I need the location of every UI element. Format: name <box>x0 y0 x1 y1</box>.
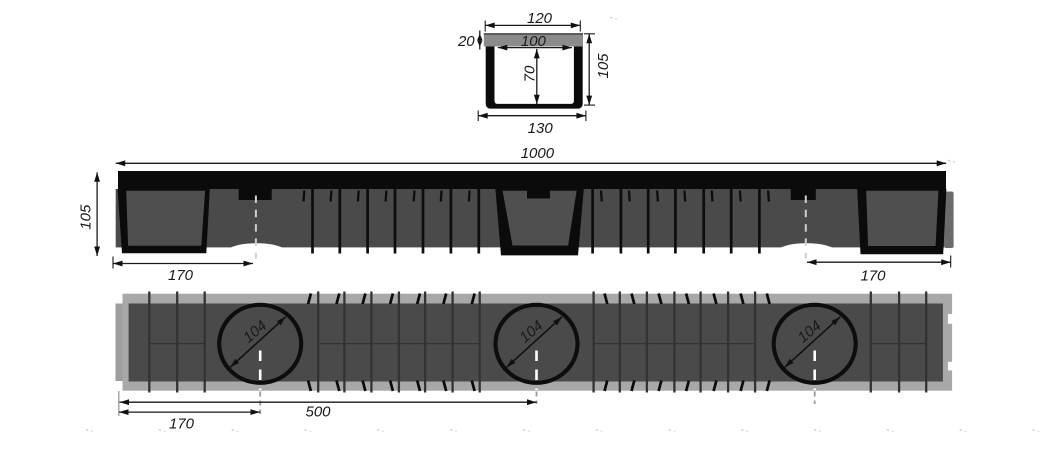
svg-text:20: 20 <box>457 33 475 50</box>
svg-text:130: 130 <box>528 120 554 137</box>
svg-text:100: 100 <box>521 33 547 50</box>
svg-text:170: 170 <box>168 267 194 284</box>
svg-text:120: 120 <box>527 10 553 27</box>
svg-text:70: 70 <box>522 65 539 82</box>
svg-text:105: 105 <box>595 53 612 79</box>
svg-text:170: 170 <box>169 416 195 433</box>
svg-text:1000: 1000 <box>521 145 555 162</box>
svg-text:500: 500 <box>305 403 331 420</box>
svg-text:105: 105 <box>78 204 95 230</box>
svg-text:170: 170 <box>860 268 886 285</box>
